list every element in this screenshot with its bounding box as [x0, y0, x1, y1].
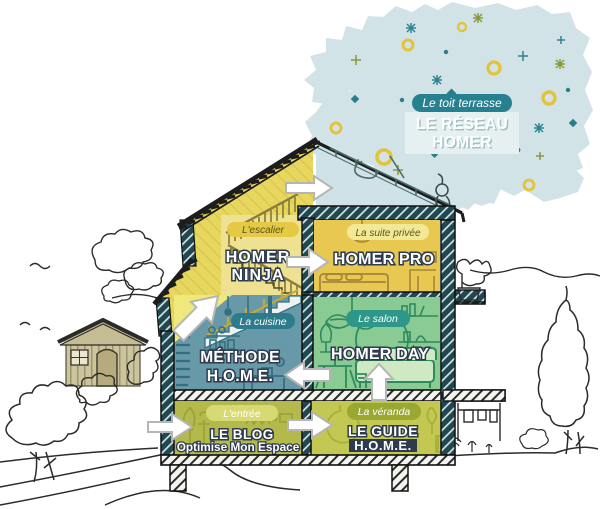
svg-text:La suite privée: La suite privée	[355, 228, 420, 239]
svg-text:H.O.M.E.: H.O.M.E.	[354, 438, 411, 453]
svg-text:Optimise Mon Espace: Optimise Mon Espace	[177, 440, 300, 454]
svg-text:La véranda: La véranda	[358, 406, 411, 418]
svg-text:HOMER: HOMER	[226, 249, 291, 266]
svg-text:L'escalier: L'escalier	[242, 225, 285, 236]
svg-text:La cuisine: La cuisine	[239, 316, 286, 328]
svg-text:LE GUIDE: LE GUIDE	[348, 423, 418, 439]
svg-text:MÉTHODE: MÉTHODE	[200, 349, 280, 366]
svg-text:HOMER PRO: HOMER PRO	[334, 251, 434, 268]
svg-text:L'entrée: L'entrée	[223, 408, 261, 420]
svg-text:H.O.M.E.: H.O.M.E.	[207, 368, 273, 385]
svg-text:HOMER: HOMER	[432, 134, 492, 151]
svg-text:Le toit terrasse: Le toit terrasse	[422, 96, 502, 110]
svg-text:LE RÉSEAU: LE RÉSEAU	[416, 116, 508, 133]
svg-text:NINJA: NINJA	[231, 267, 284, 284]
svg-text:Le salon: Le salon	[358, 313, 398, 325]
svg-text:HOMER DAY: HOMER DAY	[331, 346, 429, 363]
